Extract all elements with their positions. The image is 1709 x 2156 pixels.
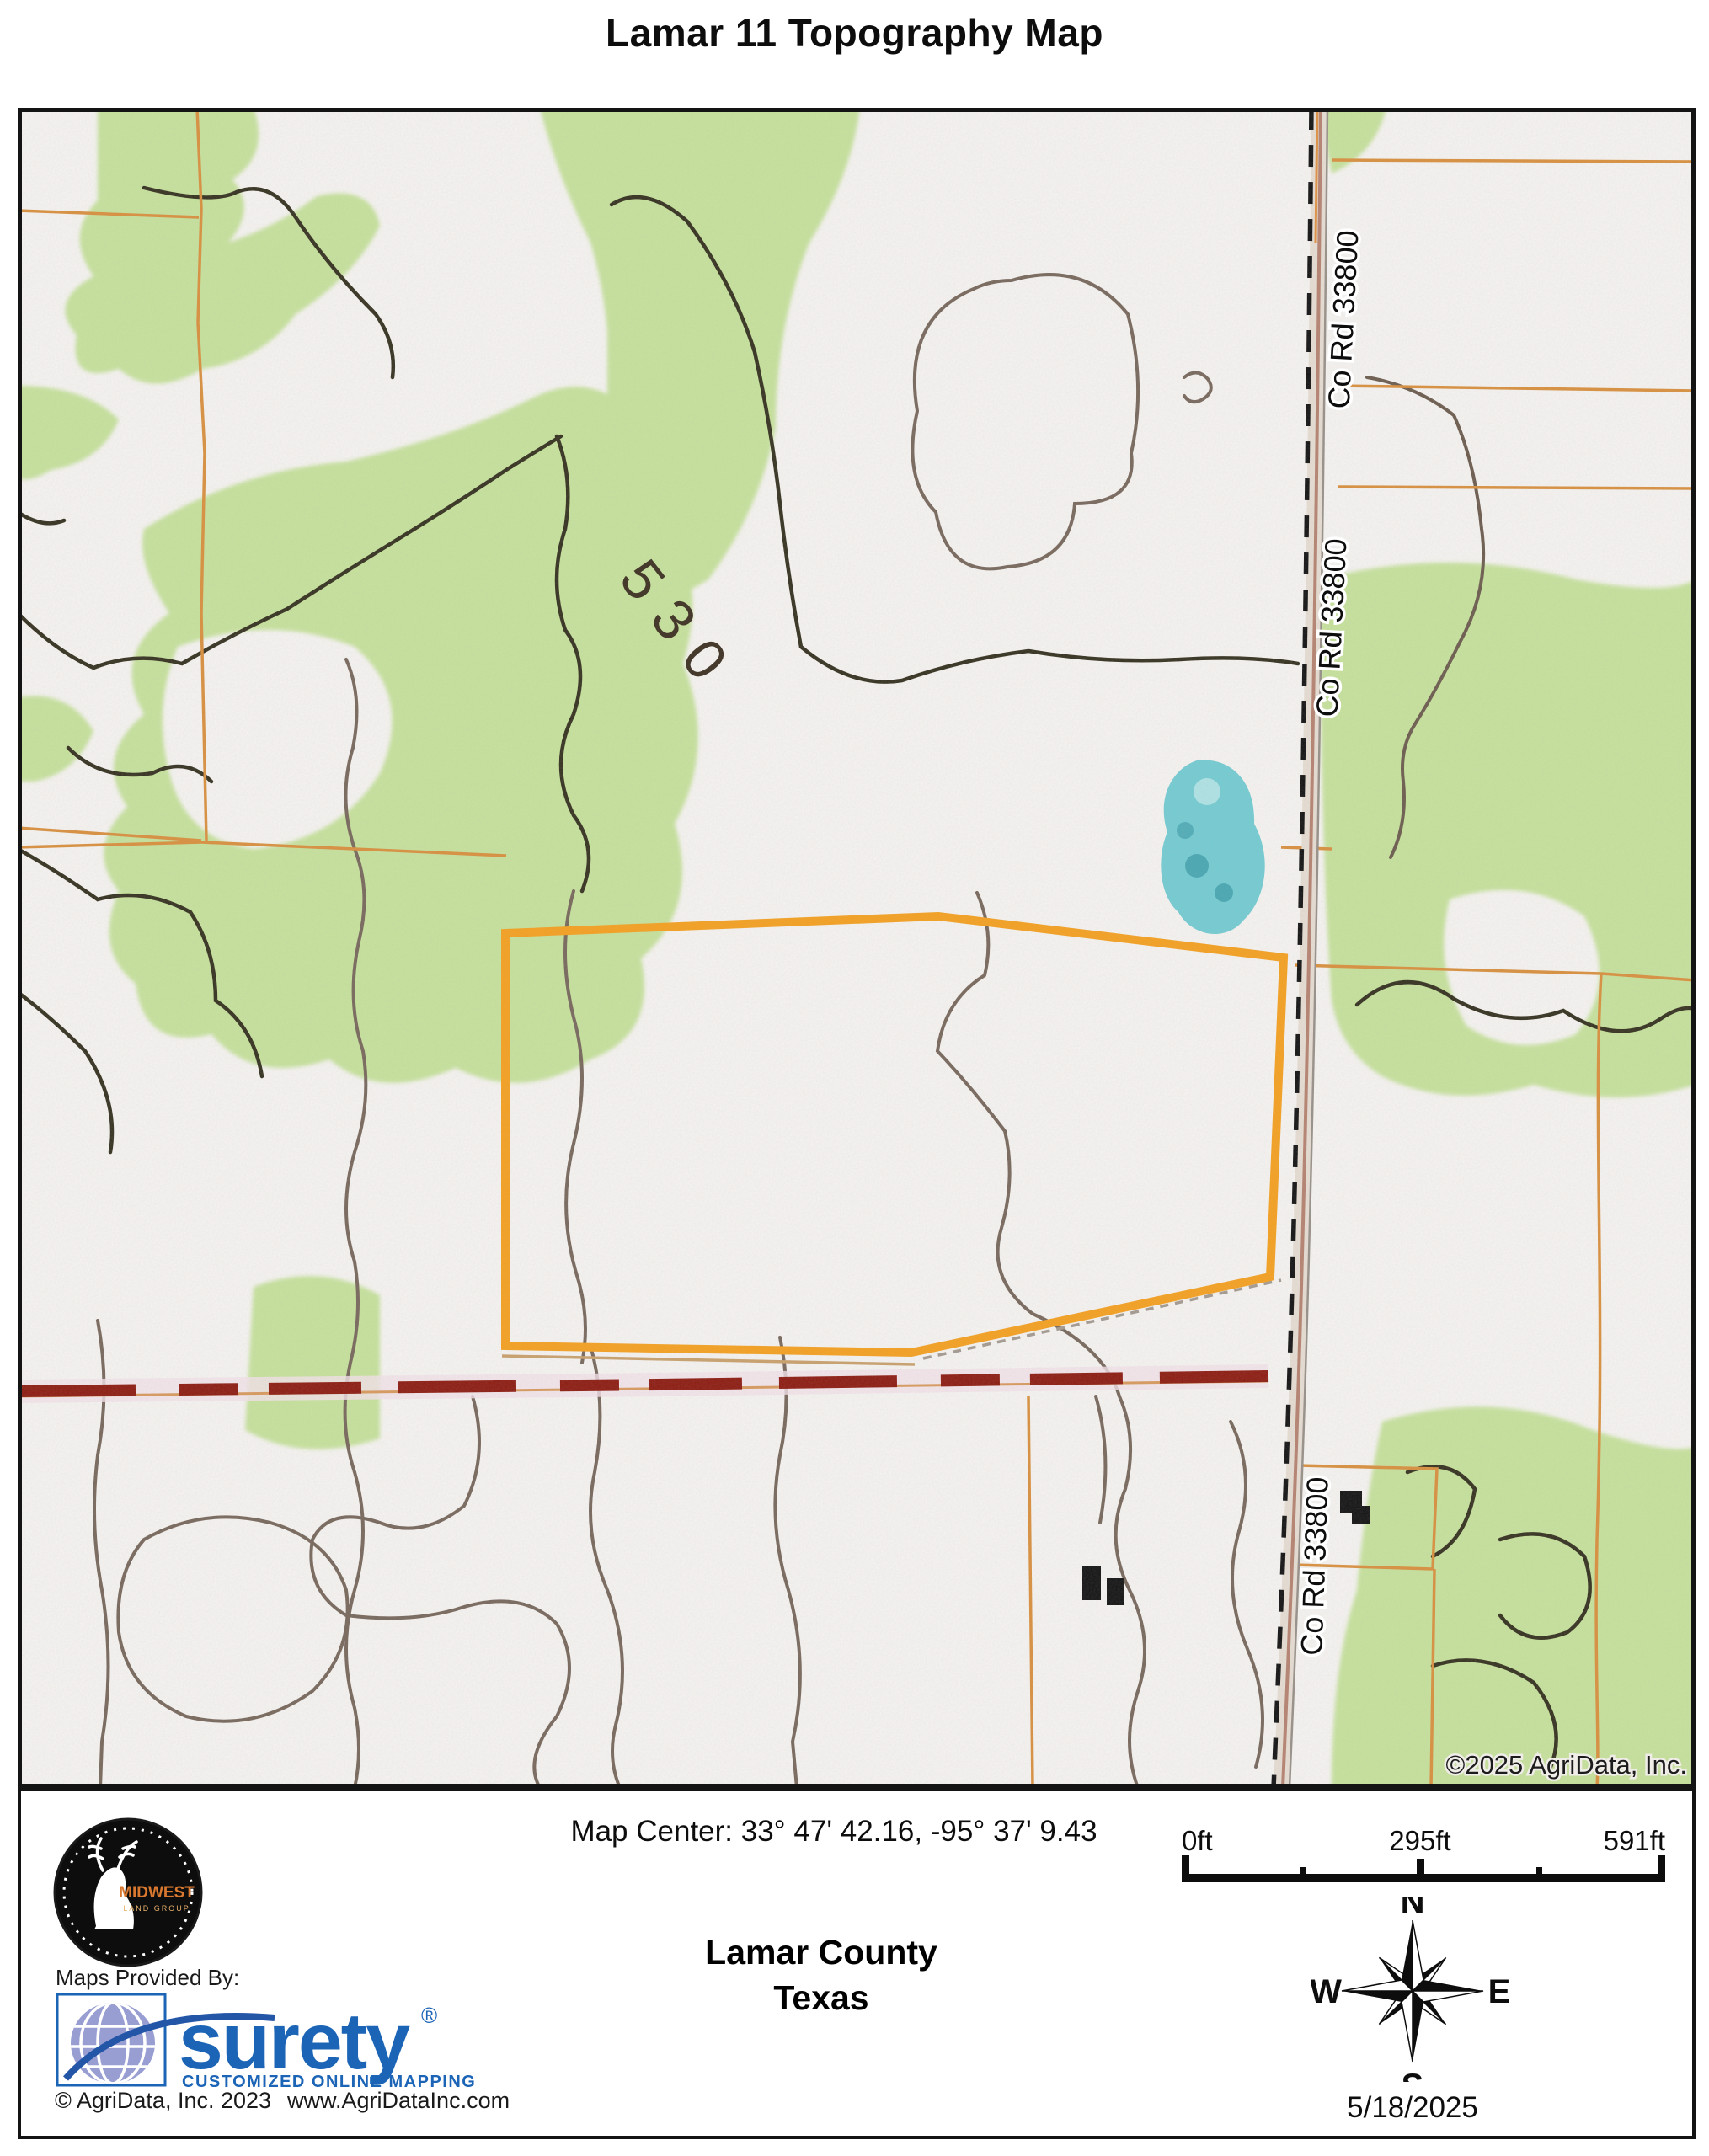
map-center-coordinates: Map Center: 33° 47' 42.16, -95° 37' 9.43 xyxy=(442,1815,1226,1849)
compass-east-label: E xyxy=(1488,1973,1511,2010)
midwest-logo-name: MIDWEST xyxy=(119,1884,195,1902)
state-label: Texas xyxy=(611,1978,1032,2018)
compass-west-label: W xyxy=(1311,1973,1342,2010)
surety-registered-mark: ® xyxy=(421,2003,437,2028)
compass-cardinal-points xyxy=(1342,1920,1483,2062)
agridata-url: www.AgriDataInc.com xyxy=(287,2088,510,2114)
map-copyright: ©2025 AgriData, Inc. xyxy=(1445,1750,1687,1780)
scale-start-label: 0ft xyxy=(1182,1825,1213,1856)
map-noise-texture xyxy=(18,108,1696,1788)
compass-north-label: N xyxy=(1401,1897,1425,1921)
topo-map: 530 Co Rd 33800 Co Rd 33800 Co Rd 33800 … xyxy=(18,108,1696,1788)
midwest-land-group-logo: MIDWEST LAND GROUP xyxy=(52,1817,204,1968)
page-title: Lamar 11 Topography Map xyxy=(0,10,1709,56)
maps-provided-by-label: Maps Provided By: xyxy=(56,1965,239,1991)
road-label-bottom: Co Rd 33800 xyxy=(1294,1476,1334,1656)
surety-logo: surety ® CUSTOMIZED ONLINE MAPPING xyxy=(54,1991,526,2092)
compass-south-label: S xyxy=(1402,2068,1424,2082)
county-label: Lamar County xyxy=(611,1933,1032,1972)
midwest-logo-subtitle: LAND GROUP xyxy=(123,1904,190,1913)
scale-bar: 0ft 295ft 591ft xyxy=(1167,1817,1689,1892)
scale-bar-ruler xyxy=(1182,1855,1665,1882)
page: Lamar 11 Topography Map xyxy=(0,0,1709,2156)
map-date: 5/18/2025 xyxy=(1286,2091,1539,2125)
compass-rose: N E S W xyxy=(1311,1897,1514,2082)
scale-middle-label: 295ft xyxy=(1389,1825,1450,1856)
footer-panel: MIDWEST LAND GROUP Maps Provided By: sur… xyxy=(18,1788,1696,2139)
agridata-copyright: © AgriData, Inc. 2023 xyxy=(55,2088,271,2114)
scale-end-label: 591ft xyxy=(1604,1825,1665,1856)
